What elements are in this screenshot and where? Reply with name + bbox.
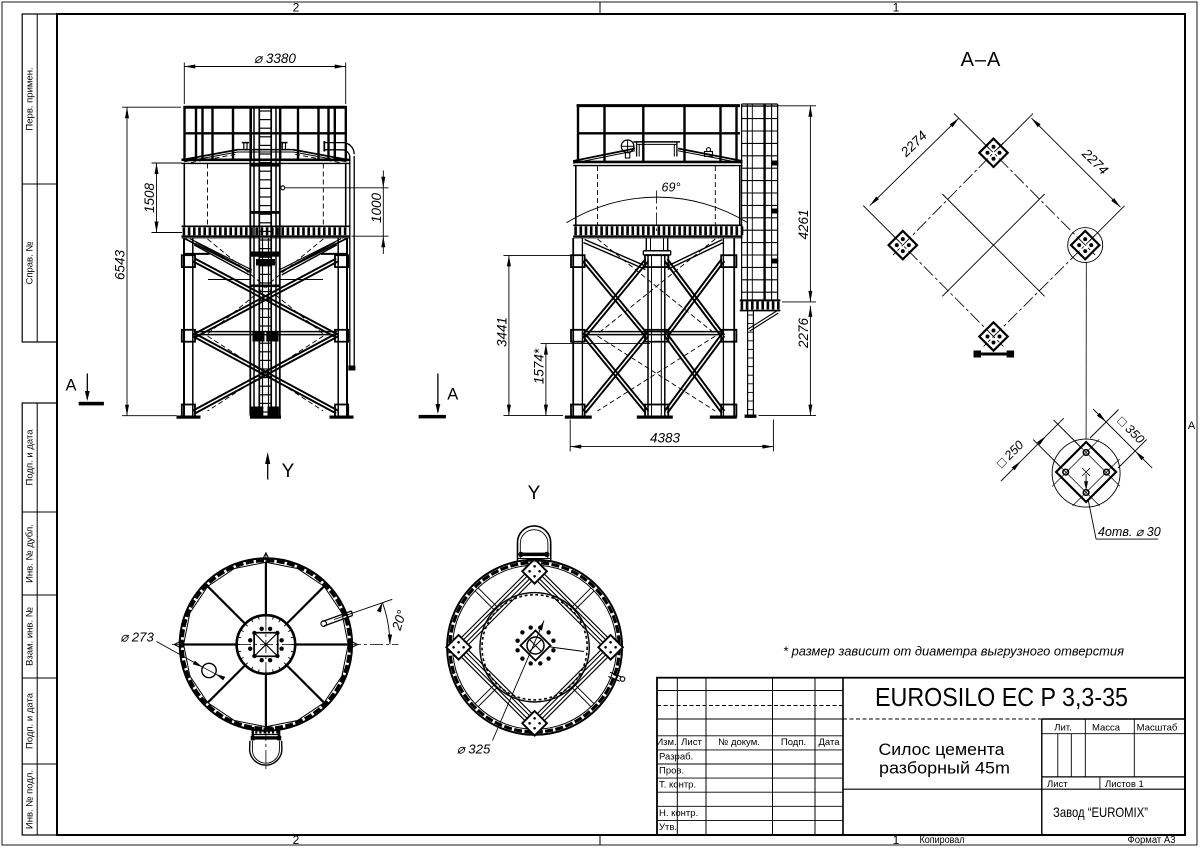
svg-text:Справ. №: Справ. № xyxy=(25,241,36,284)
svg-text:Подп. и дата: Подп. и дата xyxy=(25,692,36,749)
svg-text:Т. контр.: Т. контр. xyxy=(659,780,696,791)
svg-text:Подп.: Подп. xyxy=(781,737,806,748)
svg-text:EUROSILO EC P 3,3-35: EUROSILO EC P 3,3-35 xyxy=(875,682,1128,712)
svg-text:Взам. инв. №: Взам. инв. № xyxy=(25,607,36,666)
svg-text:А: А xyxy=(447,385,458,403)
svg-text:Инв. № дубл.: Инв. № дубл. xyxy=(25,524,36,583)
svg-text:4383: 4383 xyxy=(650,431,681,446)
svg-text:Y: Y xyxy=(528,483,541,504)
svg-text:4отв. ⌀ 30: 4отв. ⌀ 30 xyxy=(1098,525,1161,539)
svg-text:Инв. № подл.: Инв. № подл. xyxy=(25,770,36,829)
svg-text:Пров.: Пров. xyxy=(659,766,684,777)
svg-text:Лит.: Лит. xyxy=(1054,723,1071,734)
svg-text:А: А xyxy=(1188,420,1196,432)
svg-text:Дата: Дата xyxy=(818,737,840,748)
svg-text:3441: 3441 xyxy=(494,317,509,347)
svg-text:Завод “EUROMIX”: Завод “EUROMIX” xyxy=(1053,804,1148,820)
svg-text:Перв. примен.: Перв. примен. xyxy=(25,67,36,130)
svg-text:⌀ 325: ⌀ 325 xyxy=(457,742,491,757)
svg-text:1000: 1000 xyxy=(369,192,384,223)
svg-text:Разраб.: Разраб. xyxy=(659,752,693,763)
svg-text:А–А: А–А xyxy=(961,49,1002,71)
svg-text:6543: 6543 xyxy=(113,249,128,280)
svg-text:1: 1 xyxy=(893,1,900,15)
svg-text:⌀ 3380: ⌀ 3380 xyxy=(254,51,296,66)
svg-text:2: 2 xyxy=(293,833,300,847)
svg-text:2276: 2276 xyxy=(796,317,811,349)
svg-text:4261: 4261 xyxy=(796,209,811,239)
svg-text:2: 2 xyxy=(293,1,300,15)
svg-text:разборный 45m: разборный 45m xyxy=(879,760,1010,778)
svg-text:Лист: Лист xyxy=(681,737,702,748)
svg-text:* размер зависит от диаметра в: * размер зависит от диаметра выгрузного … xyxy=(783,644,1124,659)
svg-text:⌀ 273: ⌀ 273 xyxy=(120,630,154,645)
svg-text:69°: 69° xyxy=(662,181,681,195)
svg-text:Н. контр.: Н. контр. xyxy=(659,808,698,819)
svg-text:1508: 1508 xyxy=(142,182,157,213)
svg-text:Y: Y xyxy=(282,461,295,482)
svg-text:Утв.: Утв. xyxy=(659,822,677,833)
svg-text:Масса: Масса xyxy=(1092,723,1121,734)
svg-text:1574*: 1574* xyxy=(531,348,546,384)
svg-text:Силос цемента: Силос цемента xyxy=(879,741,1006,759)
svg-text:Изм.: Изм. xyxy=(656,737,676,748)
svg-text:№ докум.: № докум. xyxy=(718,737,760,748)
svg-text:А: А xyxy=(65,377,76,395)
svg-text:Масштаб: Масштаб xyxy=(1137,723,1178,734)
svg-text:Подп. и дата: Подп. и дата xyxy=(25,429,36,486)
svg-text:Листов 1: Листов 1 xyxy=(1105,779,1144,790)
svg-text:Лист: Лист xyxy=(1047,779,1068,790)
